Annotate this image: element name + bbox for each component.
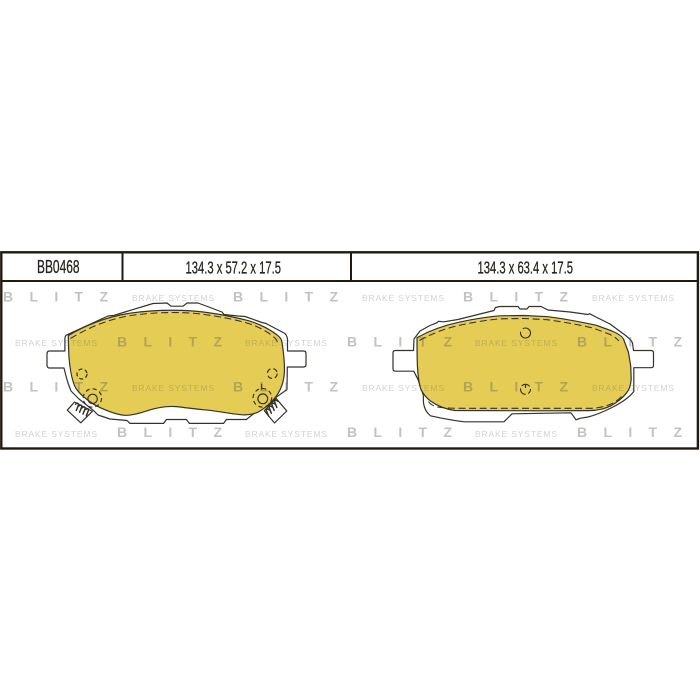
svg-text:BRAKE SYSTEMS: BRAKE SYSTEMS [15,338,97,348]
svg-text:BRAKE SYSTEMS: BRAKE SYSTEMS [245,429,327,439]
svg-text:BB0468: BB0468 [37,256,80,277]
svg-text:BRAKE SYSTEMS: BRAKE SYSTEMS [245,338,327,348]
svg-text:BRAKE SYSTEMS: BRAKE SYSTEMS [15,429,97,439]
svg-text:BRAKE SYSTEMS: BRAKE SYSTEMS [362,383,444,393]
svg-text:BRAKE SYSTEMS: BRAKE SYSTEMS [475,429,557,439]
svg-text:134.3 x 57.2 x 17.5: 134.3 x 57.2 x 17.5 [186,257,282,277]
svg-text:BRAKE SYSTEMS: BRAKE SYSTEMS [592,293,674,303]
svg-text:BRAKE SYSTEMS: BRAKE SYSTEMS [475,338,557,348]
svg-text:BRAKE SYSTEMS: BRAKE SYSTEMS [132,293,214,303]
svg-text:134.3 x 63.4 x 17.5: 134.3 x 63.4 x 17.5 [478,257,574,277]
svg-text:BRAKE SYSTEMS: BRAKE SYSTEMS [132,383,214,393]
svg-text:BRAKE SYSTEMS: BRAKE SYSTEMS [362,293,444,303]
svg-text:BRAKE SYSTEMS: BRAKE SYSTEMS [592,383,674,393]
